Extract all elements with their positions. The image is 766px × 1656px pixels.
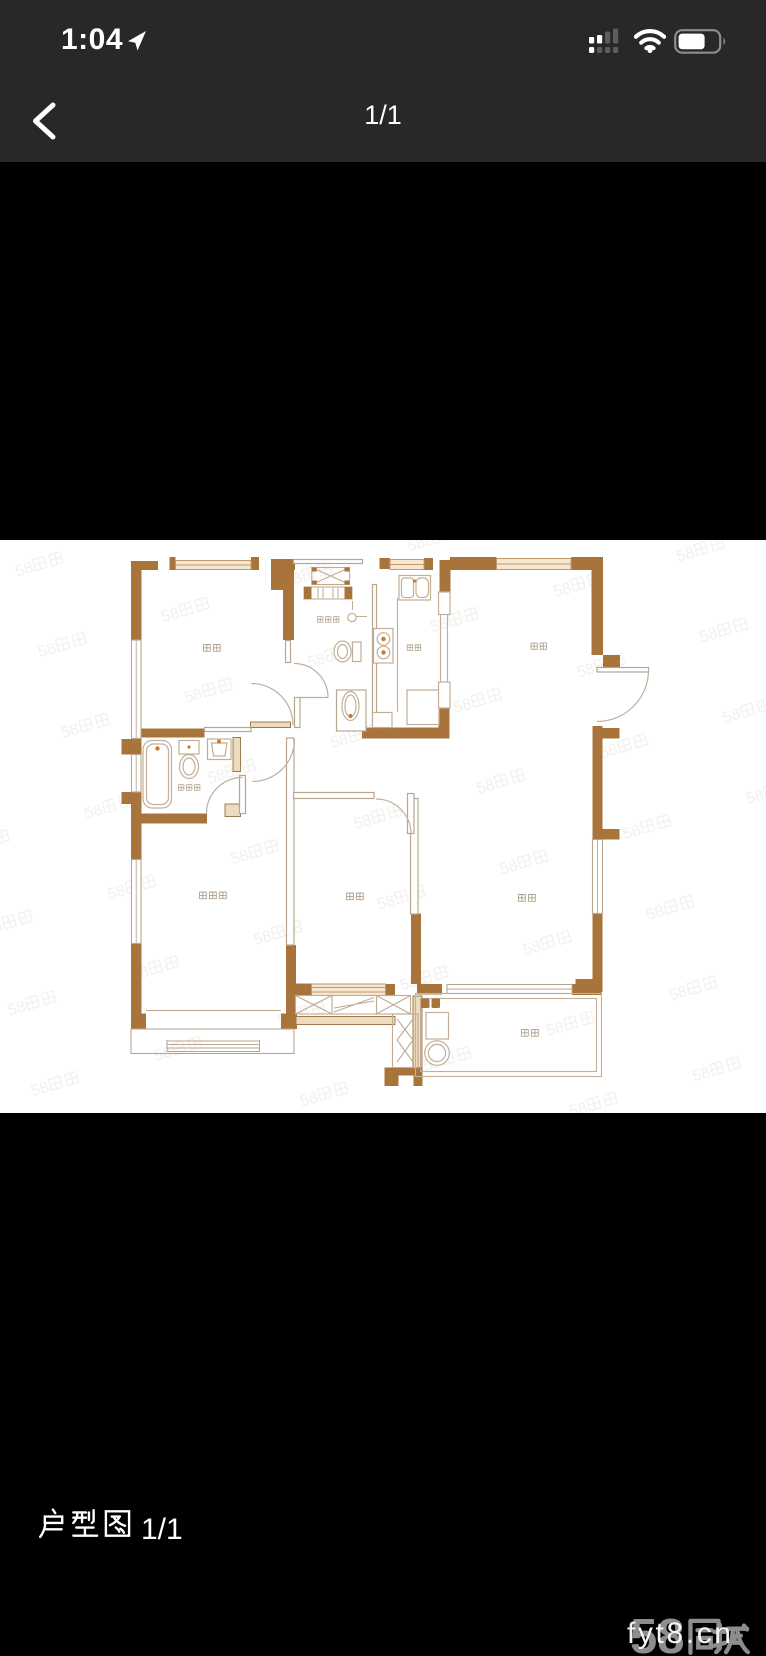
svg-text:1/1: 1/1: [141, 1513, 183, 1546]
